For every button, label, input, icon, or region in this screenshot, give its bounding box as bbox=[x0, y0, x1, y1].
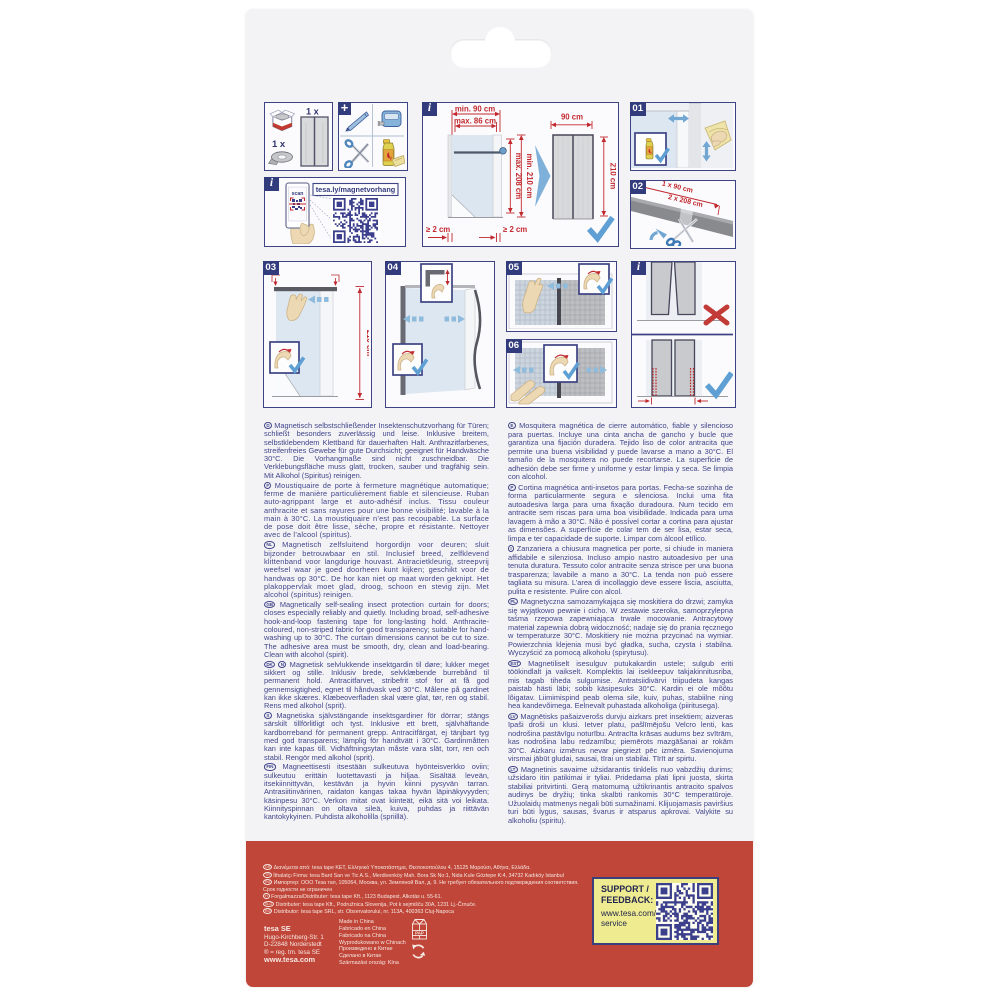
svg-text:PAP: PAP bbox=[415, 931, 424, 936]
svg-text:min. 90 cm: min. 90 cm bbox=[455, 105, 495, 114]
svg-text:210 cm: 210 cm bbox=[609, 163, 616, 190]
svg-text:≥ 2 cm: ≥ 2 cm bbox=[503, 225, 527, 234]
svg-text:1 x: 1 x bbox=[306, 107, 320, 117]
svg-text:min. 210 cm: min. 210 cm bbox=[525, 154, 534, 199]
svg-text:max. 86 cm: max. 86 cm bbox=[454, 117, 496, 126]
svg-text:210 cm: 210 cm bbox=[365, 330, 369, 357]
svg-text:≥ 2 cm: ≥ 2 cm bbox=[426, 225, 450, 234]
svg-text:1 x: 1 x bbox=[272, 139, 286, 150]
svg-text:tesa.ly/magnetvorhang: tesa.ly/magnetvorhang bbox=[316, 185, 395, 194]
svg-text:90 cm: 90 cm bbox=[561, 113, 583, 122]
svg-text:scan: scan bbox=[292, 191, 304, 197]
svg-text:max. 208 cm: max. 208 cm bbox=[514, 153, 523, 199]
